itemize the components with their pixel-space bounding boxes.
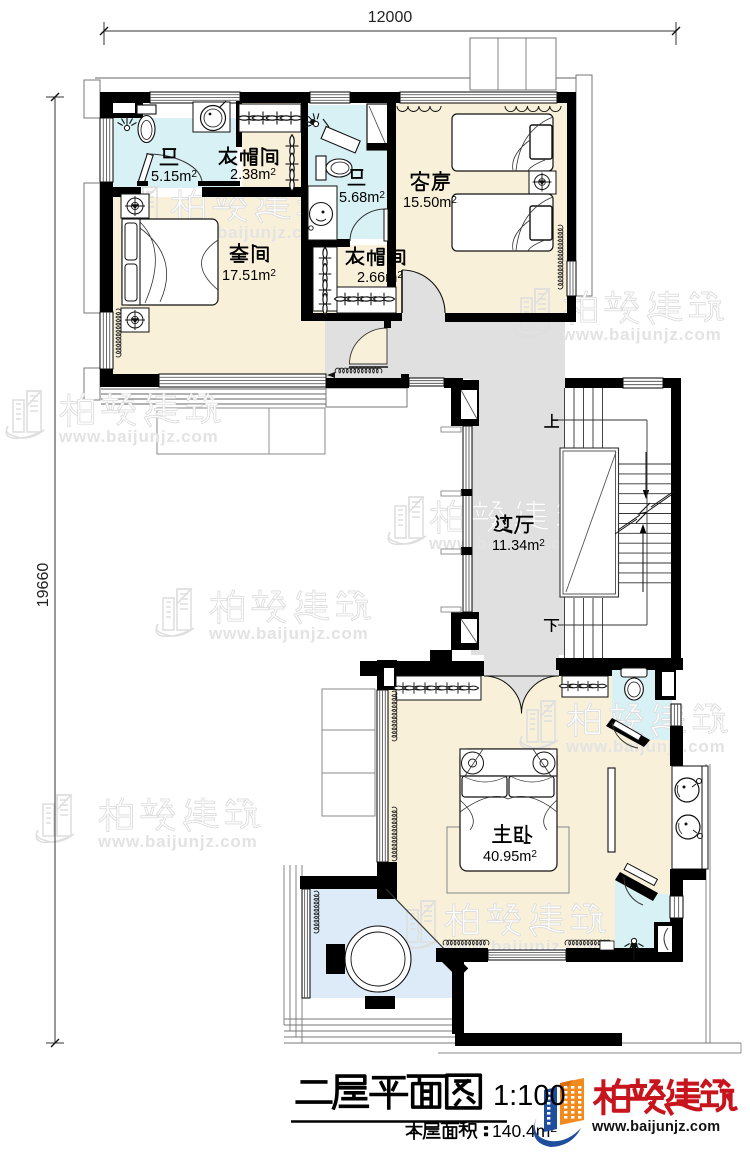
svg-text:www.baijunjz.com: www.baijunjz.com: [208, 624, 369, 643]
svg-text:www.baijunjz.com: www.baijunjz.com: [561, 325, 722, 344]
svg-text:5.68m2: 5.68m2: [339, 190, 385, 206]
svg-text:40.95m2: 40.95m2: [483, 849, 537, 865]
svg-text:12000: 12000: [368, 9, 413, 26]
svg-text:www.baijunjz.com: www.baijunjz.com: [58, 427, 219, 446]
svg-text:1:100: 1:100: [493, 1080, 566, 1112]
svg-text:11.34m2: 11.34m2: [492, 538, 545, 554]
svg-text:15.50m2: 15.50m2: [403, 195, 457, 211]
svg-text:www.baijunjz.com: www.baijunjz.com: [591, 1119, 720, 1135]
svg-text:2.66m2: 2.66m2: [357, 270, 403, 286]
svg-text:19660: 19660: [35, 563, 52, 608]
svg-text:www.baijunjz.com: www.baijunjz.com: [97, 832, 258, 851]
svg-text:2.38m2: 2.38m2: [230, 167, 276, 183]
svg-text:17.51m2: 17.51m2: [222, 268, 276, 284]
svg-text:5.15m2: 5.15m2: [151, 169, 197, 185]
